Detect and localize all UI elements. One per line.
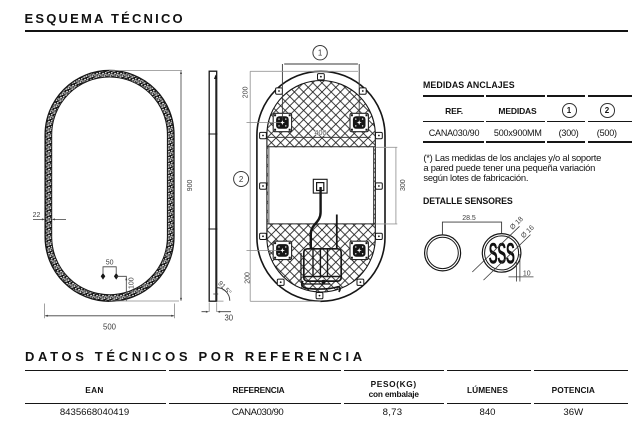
svg-text:200: 200 xyxy=(243,86,250,98)
svg-text:2: 2 xyxy=(239,175,244,184)
svg-text:28.5: 28.5 xyxy=(462,215,476,222)
svg-text:100: 100 xyxy=(128,277,135,289)
svg-text:30: 30 xyxy=(224,313,233,322)
svg-text:500: 500 xyxy=(103,322,117,331)
svg-text:50: 50 xyxy=(106,260,114,267)
svg-text:900: 900 xyxy=(187,180,194,192)
svg-text:400: 400 xyxy=(315,128,327,137)
svg-text:300: 300 xyxy=(400,179,407,191)
svg-text:200: 200 xyxy=(244,272,251,284)
svg-text:22: 22 xyxy=(33,212,41,219)
svg-text:1: 1 xyxy=(318,49,323,58)
svg-text:SSS: SSS xyxy=(489,236,515,269)
svg-text:10: 10 xyxy=(523,270,531,277)
